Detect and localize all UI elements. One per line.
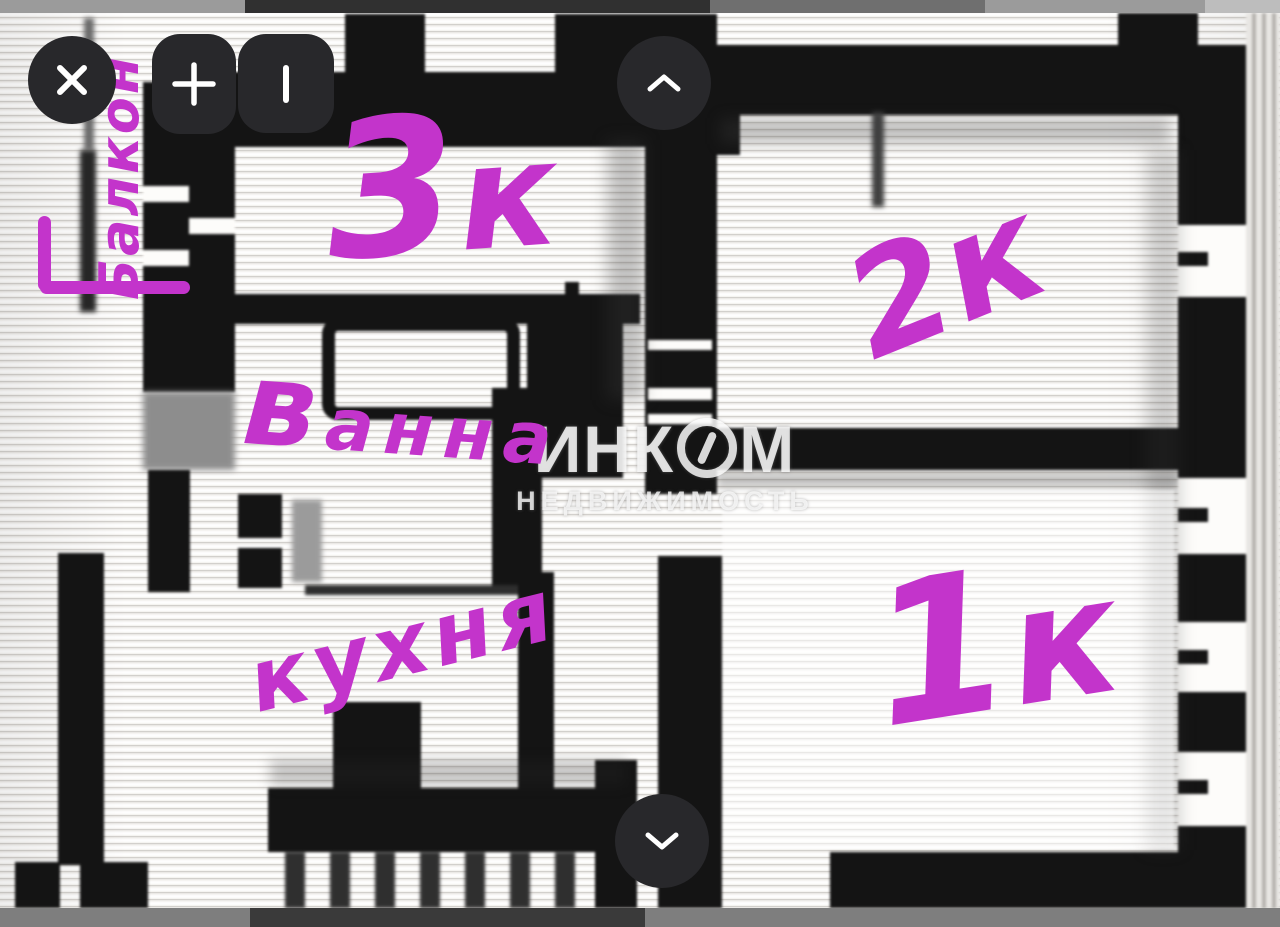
digit-1-in-circle-icon [677,418,737,478]
watermark-brand-right: М [739,412,796,486]
floorplan-viewer: ИНКМ НЕДВИЖИМОСТЬ Балкон 3к 2к 1к ванна … [0,0,1280,927]
wall-segment [58,553,104,865]
shadow-patch [720,118,1170,144]
railing-stripe [465,852,485,908]
fixture-block [238,494,282,538]
shadow-patch [292,500,322,582]
wall-segment [345,14,425,74]
wall-segment [1118,13,1198,48]
strip-segment [985,0,1205,13]
strip-segment [710,0,985,13]
strip-segment [0,908,250,927]
wall-segment [143,294,235,392]
window-tick [1178,650,1208,664]
watermark-subtitle: НЕДВИЖИМОСТЬ [500,486,830,517]
window-gap [189,218,235,234]
strip-segment [1205,0,1280,13]
wall-segment [830,852,1245,908]
shadow-patch [143,392,235,470]
window-tick [1178,780,1208,794]
annotation-bath: ванна [240,349,567,481]
railing-stripe [285,852,305,908]
plus-icon [172,62,216,106]
railing-stripe [420,852,440,908]
window-tick [1178,508,1208,522]
close-button[interactable] [28,36,116,124]
tool-bar-button[interactable] [238,34,334,133]
railing-stripe [330,852,350,908]
strip-segment [645,908,1280,927]
photo-top-strip [0,0,1280,13]
railing-stripe [555,852,575,908]
balcony-underline-stroke [40,281,190,294]
wall-segment [712,45,1247,115]
wall-segment [15,862,60,908]
chevron-up-icon [644,72,684,94]
wall-segment [80,862,148,908]
x-icon [50,58,94,102]
vertical-bar-icon [283,65,289,103]
annotation-balcony: Балкон [94,0,145,300]
door-gap [648,340,712,350]
strip-segment [245,0,710,13]
railing-stripe [510,852,530,908]
floorplan-photo: ИНКМ НЕДВИЖИМОСТЬ Балкон 3к 2к 1к ванна … [0,0,1280,927]
shadow-patch [270,760,626,786]
photo-bottom-strip [0,908,1280,927]
balcony-underline-stroke [38,216,51,291]
railing-stripe [375,852,395,908]
chevron-down-icon [642,830,682,852]
shadow-patch [607,140,645,400]
wall-segment [552,788,600,814]
strip-segment [250,908,645,927]
logo-bar [697,431,718,465]
window-tick [1178,252,1208,266]
scroll-up-button[interactable] [617,36,711,130]
zoom-in-button[interactable] [152,34,236,134]
wall-segment [148,470,190,592]
door-gap [648,388,712,400]
scroll-down-button[interactable] [615,794,709,888]
annotation-room-3k: 3к [319,88,562,284]
annotation-room-1k: 1к [859,530,1129,751]
photo-right-edge [1246,13,1280,908]
fixture-block [238,548,282,588]
